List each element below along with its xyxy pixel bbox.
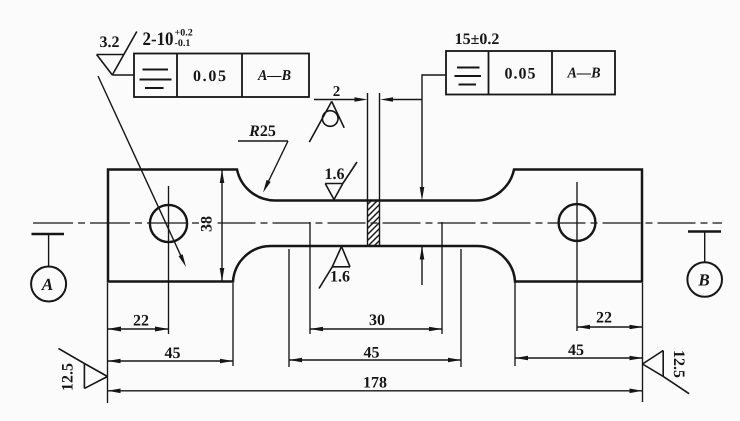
svg-text:38: 38 — [199, 216, 216, 232]
svg-text:22: 22 — [133, 313, 149, 330]
svg-text:+0.2: +0.2 — [175, 28, 193, 39]
svg-text:R25: R25 — [248, 123, 276, 140]
svg-text:1.6: 1.6 — [325, 166, 345, 183]
svg-text:3.2: 3.2 — [100, 34, 120, 51]
svg-text:22: 22 — [596, 310, 612, 327]
svg-text:45: 45 — [568, 342, 584, 359]
svg-text:B: B — [697, 271, 709, 290]
svg-text:12.5: 12.5 — [60, 363, 77, 391]
svg-text:A—B: A—B — [567, 66, 601, 82]
svg-text:0.05: 0.05 — [505, 66, 536, 83]
svg-text:A: A — [41, 275, 53, 294]
svg-text:30: 30 — [369, 312, 385, 329]
svg-text:2: 2 — [333, 84, 341, 100]
svg-text:0.05: 0.05 — [193, 68, 226, 85]
svg-text:2-10: 2-10 — [143, 29, 174, 50]
svg-text:-0.1: -0.1 — [175, 38, 191, 49]
svg-text:178: 178 — [363, 375, 387, 392]
svg-text:1.6: 1.6 — [330, 269, 350, 286]
svg-text:15±0.2: 15±0.2 — [455, 31, 500, 48]
svg-text:45: 45 — [165, 345, 181, 362]
svg-text:12.5: 12.5 — [670, 350, 687, 378]
svg-text:A—B: A—B — [257, 68, 291, 84]
svg-text:45: 45 — [364, 345, 380, 362]
